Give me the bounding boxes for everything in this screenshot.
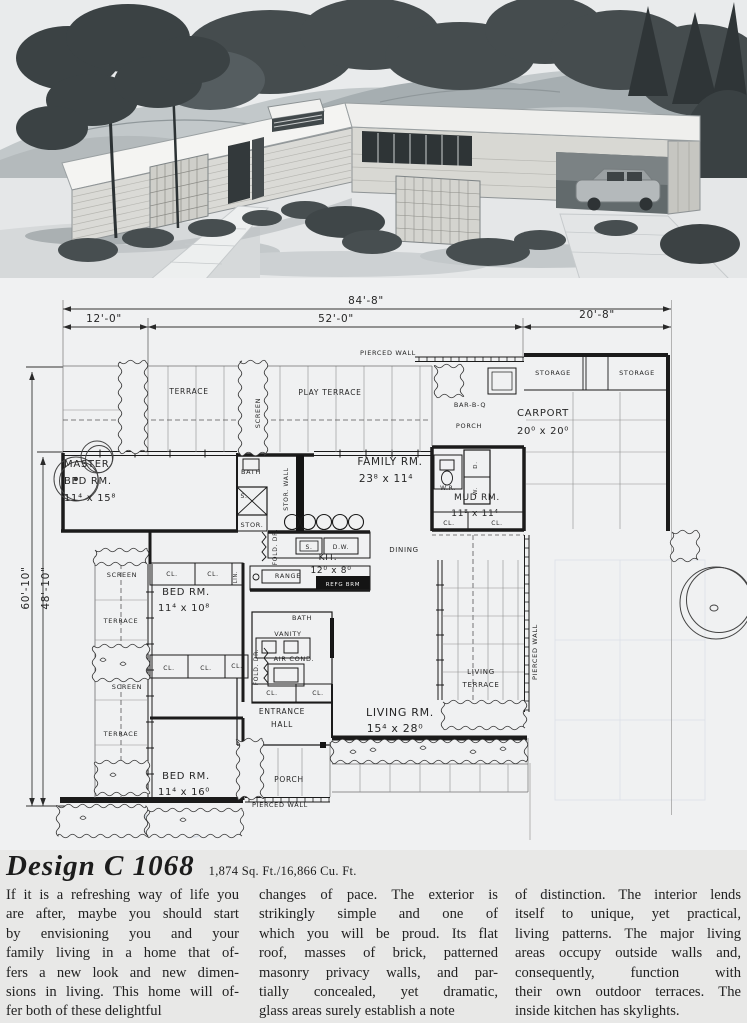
- plan-label: TERRACE: [103, 730, 139, 738]
- plan-label: S.: [240, 493, 247, 500]
- plan-label: CL.: [312, 690, 324, 697]
- plan-label: PIERCED WALL: [360, 349, 416, 357]
- body-text-line: of distinction. The interior lends: [515, 886, 741, 905]
- plan-label: 20⁰ x 20⁰: [517, 426, 569, 437]
- body-text-line: are after, maybe you should start: [6, 905, 239, 924]
- body-text-line: masonry privacy walls, and par-: [259, 964, 498, 983]
- plan-label: HALL: [271, 720, 293, 729]
- plan-label: ENTRANCE: [259, 707, 305, 716]
- plan-label: 11⁴ x 10⁸: [158, 603, 210, 614]
- plan-label: 84'-8": [348, 295, 384, 307]
- body-text-line: glass areas surely establish a note: [259, 1002, 498, 1021]
- plan-label: STORAGE: [535, 369, 571, 377]
- end-wall: [668, 141, 700, 214]
- plan-label: CL.: [166, 571, 178, 578]
- plan-label: KIT.: [319, 553, 338, 563]
- plan-label: BATH: [241, 468, 261, 476]
- plan-label: CL.: [443, 520, 455, 527]
- body-text-line: fer both of these delightful: [6, 1002, 239, 1021]
- plan-label: FOLD. DR.: [272, 529, 279, 566]
- plan-label: 11⁸ x 11⁴: [451, 509, 498, 519]
- plan-label: TERRACE: [461, 681, 499, 689]
- body-text-line: consequently, function with: [515, 964, 741, 983]
- plan-generated: [26, 300, 700, 840]
- plan-label: 60'-10": [20, 566, 32, 609]
- plan-label: S.: [305, 544, 312, 551]
- plan-label: LIVING RM.: [366, 706, 434, 719]
- plan-label: PIERCED WALL: [531, 624, 539, 680]
- plan-label: CL.: [163, 665, 175, 672]
- design-title-block: Design C 1068 1,874 Sq. Ft./16,866 Cu. F…: [6, 850, 726, 883]
- body-text-line: which you will be proud. Its flat: [259, 925, 498, 944]
- plan-label: FOLD. DR.: [253, 649, 260, 686]
- body-text-line: areas occupy outside walls and,: [515, 944, 741, 963]
- entry-door: [228, 141, 250, 204]
- plan-label: 15⁴ x 28⁰: [367, 722, 424, 735]
- body-column: of distinction. The interior lendsitself…: [515, 886, 741, 1022]
- plan-label: REFG BRM: [326, 582, 360, 588]
- plan-label: CL.: [207, 571, 219, 578]
- plan-label: CL.: [231, 663, 243, 670]
- body-text-line: tially concealed, yet dramatic,: [259, 983, 498, 1002]
- plan-label: 11⁴ x 16⁰: [158, 787, 210, 798]
- body-text-line: itself to unique, yet practical,: [515, 905, 741, 924]
- floor-plan-svg: Design 84'-8"12'-0"52'-0"20'-8"60'-10"48…: [0, 280, 747, 852]
- plan-label: PLAY TERRACE: [298, 388, 361, 397]
- plan-label: D.: [473, 461, 479, 468]
- body-text-line: fers a new look and new dimen-: [6, 964, 239, 983]
- plan-label: STORAGE: [619, 369, 655, 377]
- body-columns: If it is a refreshing way of life youare…: [6, 886, 741, 1022]
- body-text-line: inside kitchen has skylights.: [515, 1002, 741, 1021]
- entry-sidelight: [252, 137, 264, 200]
- plan-label: SCREEN: [254, 398, 262, 428]
- plan-label: 52'-0": [318, 313, 354, 325]
- body-column: changes of pace. The exterior isstriking…: [259, 886, 498, 1022]
- plan-label: AIR COND.: [274, 655, 315, 663]
- body-column: If it is a refreshing way of life youare…: [6, 886, 239, 1022]
- plan-label: PIERCED WALL: [252, 801, 308, 809]
- plan-label: D.W.: [333, 544, 349, 551]
- plan-label: CL.: [200, 665, 212, 672]
- plan-label: PORCH: [274, 775, 304, 784]
- plan-label: CL.: [491, 520, 503, 527]
- page-root: { "title": { "name": "Design C 1068", "s…: [0, 0, 747, 1023]
- body-text-line: changes of pace. The exterior is: [259, 886, 498, 905]
- body-text-line: family living in a home that of-: [6, 944, 239, 963]
- body-text-line: sions in living. This home will of-: [6, 983, 239, 1002]
- plan-label: SCREEN: [107, 571, 137, 579]
- body-text-line: living patterns. The major living: [515, 925, 741, 944]
- plan-label: DINING: [389, 546, 419, 554]
- plan-label: BAR-B-Q: [454, 401, 486, 409]
- body-text-line: by envisioning you and your: [6, 925, 239, 944]
- plan-label: 20'-8": [579, 309, 615, 321]
- plan-label: RANGE: [275, 572, 301, 580]
- body-text-line: If it is a refreshing way of life you: [6, 886, 239, 905]
- plan-label: 48'-10": [40, 566, 52, 609]
- plan-label: LIVING: [467, 668, 495, 676]
- body-text-line: strikingly simple and one of: [259, 905, 498, 924]
- plan-label: LIN.: [233, 571, 239, 583]
- plan-label: MUD RM.: [454, 493, 500, 503]
- pierced-privacy-wall: [396, 176, 480, 246]
- plan-label: CL.: [266, 690, 278, 697]
- plan-label: 23⁸ x 11⁴: [359, 473, 413, 485]
- plan-label: SCREEN: [112, 683, 142, 691]
- design-name: Design C 1068: [6, 850, 195, 883]
- plan-label: BED RM.: [162, 587, 210, 598]
- body-text-line: roof, masses of brick, patterned: [259, 944, 498, 963]
- plan-label: PORCH: [456, 422, 482, 430]
- plan-label: BED RM.: [64, 476, 112, 487]
- plan-label: BATH: [292, 614, 312, 622]
- plan-label: TERRACE: [168, 387, 208, 396]
- body-text-line: their own outdoor terraces. The: [515, 983, 741, 1002]
- design-stats: 1,874 Sq. Ft./16,866 Cu. Ft.: [209, 864, 357, 879]
- pierced-block-screen: [150, 154, 208, 229]
- plan-label: FAMILY RM.: [357, 456, 422, 468]
- plan-label: 11⁴ x 15⁸: [64, 493, 116, 504]
- plan-label: VANITY: [274, 630, 301, 638]
- plan-label: 12⁰ x 8⁰: [310, 566, 351, 576]
- plan-label: CARPORT: [517, 408, 569, 419]
- plan-label: STOR. WALL: [283, 467, 290, 510]
- plan-label: TERRACE: [103, 617, 139, 625]
- ghost-print: [555, 560, 705, 800]
- house-illustration: [0, 0, 747, 280]
- plan-label: 12'-0": [86, 313, 122, 325]
- plan-label: MASTER: [64, 459, 109, 470]
- plan-label: STOR.: [240, 521, 263, 529]
- plan-label: BED RM.: [162, 771, 210, 782]
- plan-label: W.R.: [440, 485, 456, 492]
